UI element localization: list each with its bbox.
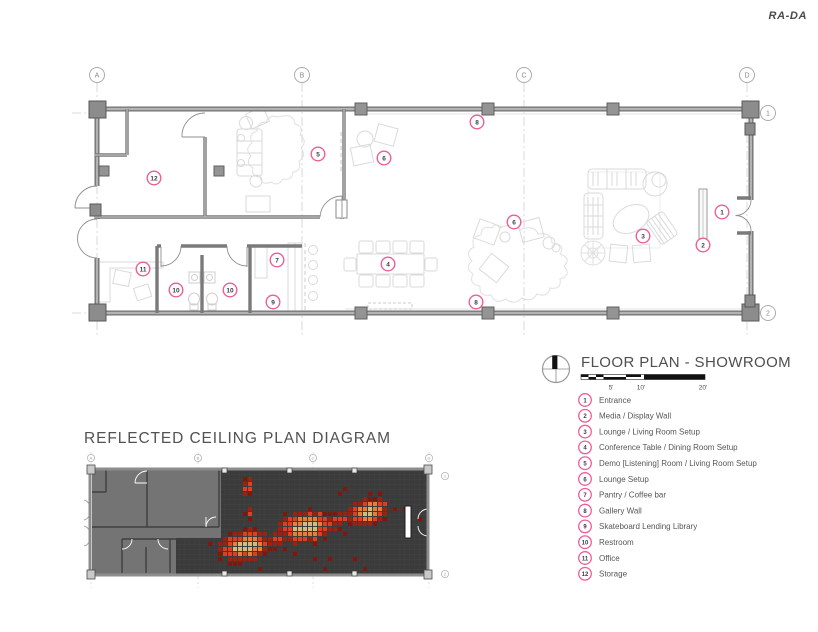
heatmap-cell	[288, 527, 292, 531]
legend-item: 8Gallery Wall	[579, 504, 642, 517]
legend-item: 5Demo [Listening] Room / Living Room Set…	[579, 457, 758, 470]
heatmap-cell	[223, 552, 227, 556]
heatmap-cell	[308, 512, 312, 516]
heatmap-cell	[358, 502, 362, 506]
plan-marker-num: 9	[271, 299, 275, 306]
heatmap-cell	[228, 532, 232, 536]
heatmap-cell	[308, 537, 312, 541]
heatmap-cell	[298, 517, 302, 521]
heatmap-cell	[303, 532, 307, 536]
heatmap-cell	[338, 522, 342, 526]
heatmap-cell	[238, 552, 242, 556]
heatmap-cell	[248, 537, 252, 541]
scale-label: 5'	[609, 385, 614, 392]
heatmap-cell	[363, 502, 367, 506]
heatmap-cell	[328, 527, 332, 531]
heatmap-cell	[223, 537, 227, 541]
heatmap-cell	[243, 532, 247, 536]
heatmap-cell	[253, 537, 257, 541]
heatmap-cell	[293, 532, 297, 536]
heatmap-cell	[248, 477, 252, 481]
plan-marker-num: 2	[701, 242, 705, 249]
heatmap-cell	[283, 532, 287, 536]
plan-marker-num: 10	[172, 287, 180, 294]
legend-label: Pantry / Coffee bar	[599, 491, 666, 500]
legend-label: Storage	[599, 570, 628, 579]
legend-label: Gallery Wall	[599, 506, 642, 515]
heatmap-cell	[258, 542, 262, 546]
heatmap-cell	[328, 512, 332, 516]
heatmap-cell	[278, 532, 282, 536]
legend-item: 2Media / Display Wall	[579, 410, 672, 423]
heatmap-cell	[233, 542, 237, 546]
heatmap-cell	[348, 507, 352, 511]
heatmap-cell	[293, 512, 297, 516]
heatmap-cell	[293, 537, 297, 541]
heatmap-cell	[308, 527, 312, 531]
heatmap-cell	[313, 542, 317, 546]
heatmap-cell	[253, 542, 257, 546]
heatmap-cell	[248, 482, 252, 486]
heatmap-cell	[248, 492, 252, 496]
heatmap-cell	[238, 532, 242, 536]
heatmap-cell	[373, 512, 377, 516]
plan-marker-num: 6	[512, 219, 516, 226]
heatmap-cell	[273, 532, 277, 536]
heatmap-cell	[313, 527, 317, 531]
plan-marker-num: 4	[386, 261, 390, 268]
heatmap-cell	[278, 537, 282, 541]
legend-item: 11Office	[579, 552, 621, 565]
heatmap-cell	[243, 542, 247, 546]
heatmap-cell	[243, 557, 247, 561]
heatmap-cell	[308, 532, 312, 536]
heatmap-cell	[233, 557, 237, 561]
heatmap-cell	[248, 487, 252, 491]
legend-label: Media / Display Wall	[599, 412, 671, 421]
heatmap-cell	[283, 537, 287, 541]
heatmap-cell	[318, 527, 322, 531]
heatmap-cell	[363, 512, 367, 516]
heatmap-cell	[313, 532, 317, 536]
heatmap-cell	[338, 517, 342, 521]
heatmap-cell	[238, 562, 242, 566]
heatmap-cell	[338, 527, 342, 531]
legend-item: 7Pantry / Coffee bar	[579, 489, 667, 502]
heatmap-cell	[258, 547, 262, 551]
legend-item: 6Lounge Setup	[579, 473, 650, 486]
heatmap-cell	[273, 542, 277, 546]
plan-marker-num: 8	[474, 299, 478, 306]
heatmap-cell	[368, 512, 372, 516]
heatmap-cell	[378, 507, 382, 511]
heatmap-cell	[218, 552, 222, 556]
heatmap-cell	[318, 532, 322, 536]
heatmap-cell	[253, 552, 257, 556]
heatmap-cell	[323, 522, 327, 526]
legend-num: 10	[582, 541, 589, 547]
heatmap-cell	[348, 517, 352, 521]
heatmap-cell	[263, 547, 267, 551]
heatmap-cell	[248, 542, 252, 546]
heatmap-cell	[233, 562, 237, 566]
heatmap-cell	[288, 537, 292, 541]
heatmap-cell	[368, 522, 372, 526]
plan-marker-num: 11	[140, 266, 147, 273]
heatmap-cell	[343, 517, 347, 521]
drawing-canvas: ABCD12 1234566788910101112 FLOOR PLAN - …	[0, 0, 818, 632]
heatmap-cell	[243, 477, 247, 481]
heatmap-cell	[323, 512, 327, 516]
heatmap-cell	[363, 507, 367, 511]
heatmap-cell	[243, 547, 247, 551]
grid-letter: B	[197, 456, 200, 461]
heatmap-cell	[273, 547, 277, 551]
legend-num: 11	[582, 556, 589, 562]
heatmap-cell	[253, 527, 257, 531]
grid-letter: A	[90, 456, 93, 461]
heatmap-cell	[313, 522, 317, 526]
heatmap-cell	[323, 517, 327, 521]
scale-label: 10'	[637, 385, 645, 392]
architectural-sheet: RA-DA	[0, 0, 818, 632]
heatmap-cell	[258, 567, 262, 571]
plan-marker-num: 1	[720, 209, 724, 216]
heatmap-cell	[353, 517, 357, 521]
heatmap-cell	[263, 542, 267, 546]
heatmap-cell	[268, 537, 272, 541]
heatmap-cell	[253, 547, 257, 551]
heatmap-cell	[258, 532, 262, 536]
heatmap-cell	[343, 532, 347, 536]
heatmap-cell	[378, 492, 382, 496]
legend-item: 9Skateboard Lending Library	[579, 520, 698, 533]
heatmap-cell	[313, 512, 317, 516]
heatmap-cell	[308, 507, 312, 511]
heatmap-cell	[298, 527, 302, 531]
heatmap-cell	[358, 512, 362, 516]
heatmap-cell	[378, 517, 382, 521]
heatmap-cell	[243, 482, 247, 486]
legend-item: 3Lounge / Living Room Setup	[579, 425, 701, 438]
heatmap-cell	[273, 537, 277, 541]
heatmap-cell	[288, 532, 292, 536]
legend-item: 12Storage	[579, 568, 628, 581]
heatmap-cell	[263, 552, 267, 556]
scale-label: 20'	[699, 385, 707, 392]
heatmap-cell	[248, 552, 252, 556]
heatmap-cell	[348, 522, 352, 526]
heatmap-cell	[228, 547, 232, 551]
heatmap-cell	[268, 547, 272, 551]
heatmap-cell	[393, 507, 397, 511]
heatmap-cell	[208, 542, 212, 546]
heatmap-cell	[238, 537, 242, 541]
grid-letter: D	[428, 456, 431, 461]
heatmap-cell	[378, 502, 382, 506]
heatmap-cell	[283, 522, 287, 526]
heatmap-cell	[383, 512, 387, 516]
heatmap-cell	[243, 512, 247, 516]
heatmap-cell	[263, 532, 267, 536]
heatmap-cell	[233, 532, 237, 536]
heatmap-cell	[358, 507, 362, 511]
heatmap-cell	[228, 537, 232, 541]
floor-plan-title: FLOOR PLAN - SHOWROOM	[581, 354, 791, 371]
heatmap-cell	[338, 492, 342, 496]
heatmap-cell	[228, 557, 232, 561]
heatmap-cell	[368, 517, 372, 521]
heatmap-cell	[383, 502, 387, 506]
heatmap-cell	[303, 512, 307, 516]
heatmap-cell	[248, 527, 252, 531]
ceiling-plan: REFLECTED CEILING PLAN DIAGRAM	[84, 430, 449, 588]
legend-label: Lounge Setup	[599, 475, 649, 484]
heatmap-cell	[313, 537, 317, 541]
grid-number: 2	[766, 311, 770, 318]
legend-label: Entrance	[599, 396, 632, 405]
grid-letter: A	[95, 73, 100, 80]
heatmap-cell	[363, 522, 367, 526]
heatmap-cell	[298, 522, 302, 526]
heatmap-cell	[283, 547, 287, 551]
heatmap-cell	[358, 517, 362, 521]
legend-label: Office	[599, 554, 620, 563]
legend-item: 10Restroom	[579, 536, 634, 549]
heatmap-cell	[238, 547, 242, 551]
heatmap-cell	[353, 512, 357, 516]
heatmap-cell	[318, 522, 322, 526]
heatmap-cell	[223, 547, 227, 551]
heatmap-cell	[283, 527, 287, 531]
grid-letter: D	[744, 73, 749, 80]
legend-label: Restroom	[599, 538, 634, 547]
legend-num: 12	[582, 572, 589, 578]
heatmap-cell	[263, 537, 267, 541]
heatmap-cell	[328, 557, 332, 561]
heatmap-cell	[378, 497, 382, 501]
heatmap-cell	[228, 552, 232, 556]
heatmap-cell	[313, 517, 317, 521]
grid-letter: C	[521, 73, 526, 80]
heatmap-cell	[333, 512, 337, 516]
heatmap-cell	[233, 552, 237, 556]
heatmap-cell	[248, 517, 252, 521]
heatmap-cell	[293, 522, 297, 526]
heatmap-cell	[303, 527, 307, 531]
legend-label: Conference Table / Dining Room Setup	[599, 443, 738, 452]
heatmap-cell	[308, 522, 312, 526]
plan-marker-num: 10	[226, 287, 234, 294]
heatmap-cell	[363, 567, 367, 571]
heatmap-cell	[323, 527, 327, 531]
heatmap-cell	[238, 542, 242, 546]
plan-marker-num: 7	[275, 257, 279, 264]
heatmap-cell	[293, 527, 297, 531]
heatmap-cell	[248, 507, 252, 511]
heatmap-cell	[253, 532, 257, 536]
heatmap-cell	[298, 512, 302, 516]
heatmap-cell	[328, 517, 332, 521]
plan-marker-num: 5	[316, 151, 320, 158]
heatmap-cell	[373, 507, 377, 511]
floorplan-columns	[89, 101, 759, 321]
floorplan-walls	[95, 109, 755, 313]
plan-marker-num: 12	[150, 175, 158, 182]
heatmap-cell	[358, 522, 362, 526]
heatmap-cell	[288, 517, 292, 521]
heatmap-cell	[233, 547, 237, 551]
heatmap-cell	[353, 557, 357, 561]
heatmap-cell	[283, 517, 287, 521]
heatmap-cell	[228, 542, 232, 546]
heatmap-cell	[353, 507, 357, 511]
heatmap-cell	[243, 492, 247, 496]
heatmap-cell	[303, 517, 307, 521]
legend: 1Entrance2Media / Display Wall3Lounge / …	[579, 394, 758, 580]
heatmap-cell	[278, 522, 282, 526]
heatmap-cell	[333, 522, 337, 526]
heatmap-cell	[368, 502, 372, 506]
scale-bar: 5'10'20'	[581, 375, 707, 392]
heatmap-cell	[348, 512, 352, 516]
heatmap-cell	[368, 497, 372, 501]
heatmap-cell	[298, 532, 302, 536]
plan-marker-num: 6	[382, 155, 386, 162]
north-arrow-icon	[543, 356, 570, 383]
heatmap-cell	[323, 537, 327, 541]
legend-item: 1Entrance	[579, 394, 632, 407]
titleblock: FLOOR PLAN - SHOWROOM 5'10'20' 1Entrance…	[543, 354, 792, 580]
heatmap-cell	[283, 512, 287, 516]
scale-labels: 5'10'20'	[609, 385, 708, 392]
heatmap-cell	[293, 552, 297, 556]
grid-letter: B	[300, 73, 305, 80]
heatmap-cell	[368, 507, 372, 511]
heatmap-cell	[308, 517, 312, 521]
heatmap-cell	[218, 542, 222, 546]
ceiling-plan-title: REFLECTED CEILING PLAN DIAGRAM	[84, 430, 391, 447]
heatmap-cell	[248, 532, 252, 536]
heatmap-cell	[303, 537, 307, 541]
heatmap-cell	[293, 517, 297, 521]
heatmap-cell	[248, 547, 252, 551]
heatmap-cell	[363, 497, 367, 501]
heatmap-cell	[418, 517, 422, 521]
heatmap-cell	[258, 537, 262, 541]
heatmap-cell	[233, 537, 237, 541]
heatmap-cell	[248, 512, 252, 516]
heatmap-cell	[383, 517, 387, 521]
heatmap-cell	[278, 542, 282, 546]
heatmap-cell	[278, 527, 282, 531]
legend-label: Skateboard Lending Library	[599, 522, 697, 531]
heatmap-cell	[288, 522, 292, 526]
heatmap-cell	[338, 512, 342, 516]
heatmap-cell	[318, 512, 322, 516]
heatmap-cell	[378, 512, 382, 516]
floorplan-markers: 1234566788910101112	[136, 115, 729, 309]
heatmap-cell	[298, 537, 302, 541]
grid-letter: C	[312, 456, 315, 461]
heatmap-cell	[343, 512, 347, 516]
heatmap-cell	[373, 502, 377, 506]
legend-label: Lounge / Living Room Setup	[599, 427, 701, 436]
heatmap-cell	[373, 522, 377, 526]
heatmap-cell	[343, 487, 347, 491]
heatmap-cell	[253, 557, 257, 561]
heatmap-cell	[218, 557, 222, 561]
heatmap-cell	[368, 492, 372, 496]
heatmap-cell	[268, 542, 272, 546]
heatmap-cell	[223, 542, 227, 546]
heatmap-cell	[323, 567, 327, 571]
heatmap-cell	[258, 552, 262, 556]
heatmap-cell	[218, 547, 222, 551]
grid-number: 1	[766, 111, 770, 118]
heatmap-cell	[373, 497, 377, 501]
legend-item: 4Conference Table / Dining Room Setup	[579, 441, 738, 454]
heatmap-cell	[303, 522, 307, 526]
heatmap-cell	[318, 517, 322, 521]
heatmap-cell	[333, 527, 337, 531]
heatmap-cell	[323, 532, 327, 536]
floor-plan: ABCD12 1234566788910101112	[72, 68, 776, 336]
heatmap-cell	[248, 557, 252, 561]
heatmap-cell	[353, 522, 357, 526]
heatmap-cell	[333, 517, 337, 521]
heatmap-cell	[243, 537, 247, 541]
heatmap-cell	[243, 527, 247, 531]
heatmap-cell	[293, 542, 297, 546]
heatmap-cell	[243, 487, 247, 491]
heatmap-cell	[228, 562, 232, 566]
plan-marker-num: 8	[475, 119, 479, 126]
heatmap-cell	[238, 557, 242, 561]
heatmap-cell	[363, 517, 367, 521]
heatmap-cell	[373, 517, 377, 521]
heatmap-cell	[328, 522, 332, 526]
legend-label: Demo [Listening] Room / Living Room Setu…	[599, 459, 757, 468]
heatmap-cell	[353, 502, 357, 506]
heatmap-cell	[383, 507, 387, 511]
heatmap-cell	[313, 557, 317, 561]
heatmap-cell	[243, 552, 247, 556]
plan-marker-num: 3	[641, 233, 645, 240]
